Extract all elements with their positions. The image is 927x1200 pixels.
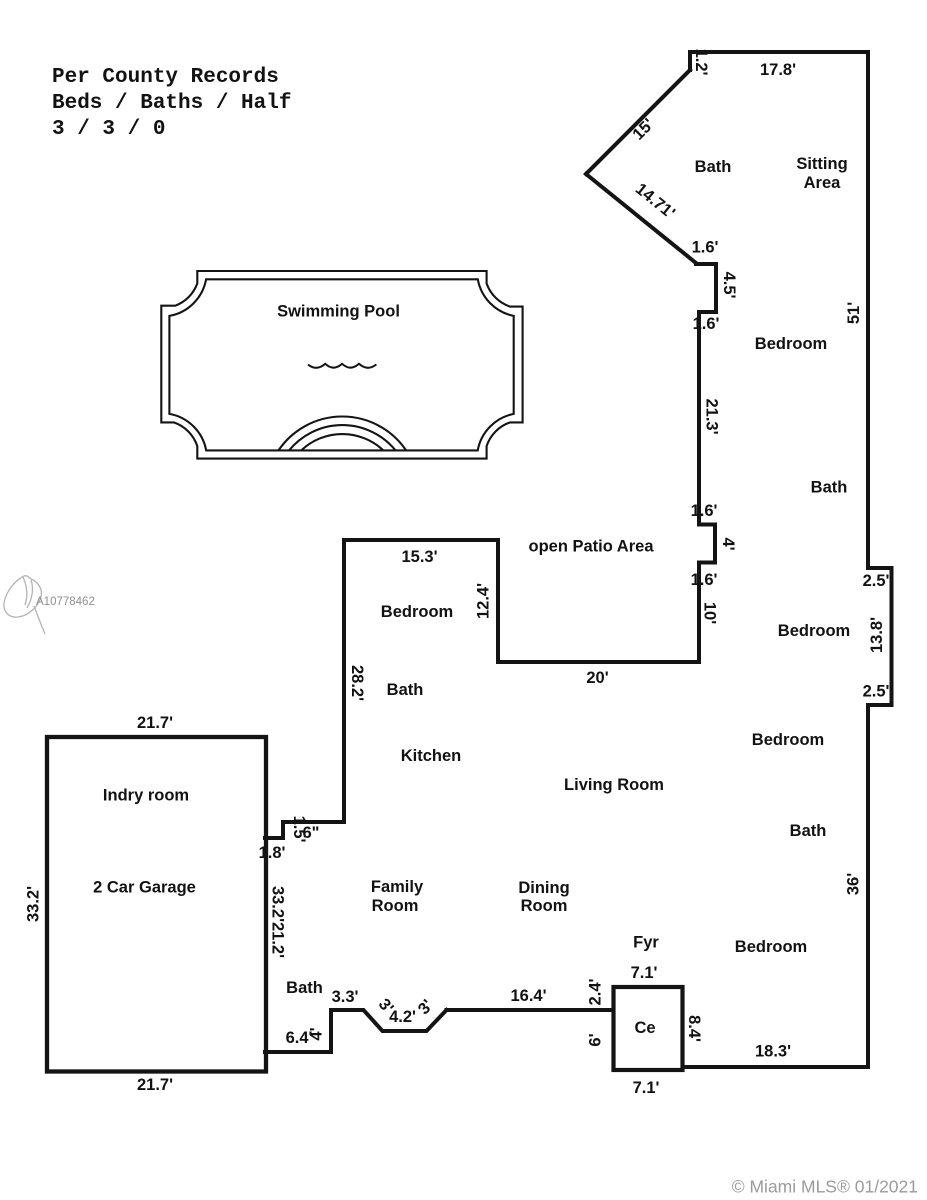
svg-text:Dining: Dining	[518, 879, 569, 897]
svg-text:1.8': 1.8'	[259, 844, 286, 862]
svg-text:Bath: Bath	[387, 681, 424, 699]
svg-text:Kitchen: Kitchen	[401, 747, 462, 765]
svg-text:13.8': 13.8'	[868, 617, 886, 653]
svg-text:2.5': 2.5'	[863, 572, 890, 590]
svg-text:4': 4'	[308, 1027, 326, 1040]
svg-text:6": 6"	[303, 824, 320, 842]
svg-text:Bedroom: Bedroom	[381, 603, 453, 621]
svg-text:1.6': 1.6'	[692, 239, 719, 257]
svg-text:Bedroom: Bedroom	[755, 335, 827, 353]
svg-text:7.1': 7.1'	[633, 1079, 660, 1097]
svg-text:1.2': 1.2'	[692, 49, 710, 76]
svg-text:2 Car Garage: 2 Car Garage	[93, 879, 196, 897]
svg-text:51': 51'	[845, 302, 863, 324]
svg-text:16.4': 16.4'	[510, 987, 546, 1005]
svg-text:2.5': 2.5'	[863, 683, 890, 701]
svg-text:2.4': 2.4'	[587, 979, 605, 1006]
svg-text:Living Room: Living Room	[564, 776, 664, 794]
svg-text:15.3': 15.3'	[401, 548, 437, 566]
svg-text:12.4': 12.4'	[475, 583, 493, 619]
svg-text:Fyr: Fyr	[633, 934, 659, 952]
svg-text:Bedroom: Bedroom	[778, 622, 850, 640]
svg-text:Sitting: Sitting	[796, 155, 847, 173]
svg-text:Family: Family	[371, 878, 424, 896]
svg-text:21.7': 21.7'	[137, 1076, 173, 1094]
svg-text:21.7': 21.7'	[137, 714, 173, 732]
svg-text:Bath: Bath	[286, 979, 323, 997]
svg-text:Room: Room	[372, 897, 419, 915]
svg-text:7.1': 7.1'	[631, 964, 658, 982]
svg-text:Room: Room	[521, 897, 568, 915]
svg-text:36': 36'	[845, 873, 863, 895]
svg-text:Bath: Bath	[790, 822, 827, 840]
svg-text:Per County Records: Per County Records	[52, 66, 279, 89]
svg-text:Bedroom: Bedroom	[735, 938, 807, 956]
svg-text:Bedroom: Bedroom	[752, 731, 824, 749]
svg-text:17.8': 17.8'	[760, 61, 796, 79]
svg-text:Indry room: Indry room	[103, 787, 189, 805]
svg-text:28.2': 28.2'	[348, 665, 366, 701]
svg-text:1.6': 1.6'	[691, 502, 718, 520]
svg-text:33.2': 33.2'	[25, 886, 43, 922]
svg-text:A10778462: A10778462	[36, 596, 95, 608]
svg-text:8.4': 8.4'	[685, 1015, 703, 1042]
svg-text:© Miami MLS® 01/2021: © Miami MLS® 01/2021	[732, 1177, 918, 1197]
svg-text:Bath: Bath	[811, 479, 848, 497]
svg-text:33.2'21.2': 33.2'21.2'	[269, 886, 287, 958]
svg-text:10': 10'	[701, 602, 719, 624]
svg-text:1.6': 1.6'	[693, 315, 720, 333]
svg-text:1.6': 1.6'	[691, 571, 718, 589]
svg-text:4': 4'	[719, 537, 737, 550]
svg-text:6': 6'	[587, 1033, 605, 1046]
svg-text:21.3': 21.3'	[703, 398, 721, 434]
svg-text:20': 20'	[586, 669, 608, 687]
svg-text:Beds / Baths / Half: Beds / Baths / Half	[52, 92, 291, 115]
svg-text:Bath: Bath	[695, 158, 732, 176]
svg-text:3.3': 3.3'	[332, 988, 359, 1006]
svg-text:4.2': 4.2'	[389, 1008, 416, 1026]
svg-text:Ce: Ce	[634, 1019, 655, 1037]
svg-text:18.3': 18.3'	[755, 1043, 791, 1061]
svg-text:3 / 3 / 0: 3 / 3 / 0	[52, 118, 165, 141]
svg-text:Swimming Pool: Swimming Pool	[277, 303, 400, 321]
svg-text:4.5': 4.5'	[720, 272, 738, 299]
svg-text:open Patio Area: open Patio Area	[529, 538, 655, 556]
svg-text:Area: Area	[804, 174, 842, 192]
